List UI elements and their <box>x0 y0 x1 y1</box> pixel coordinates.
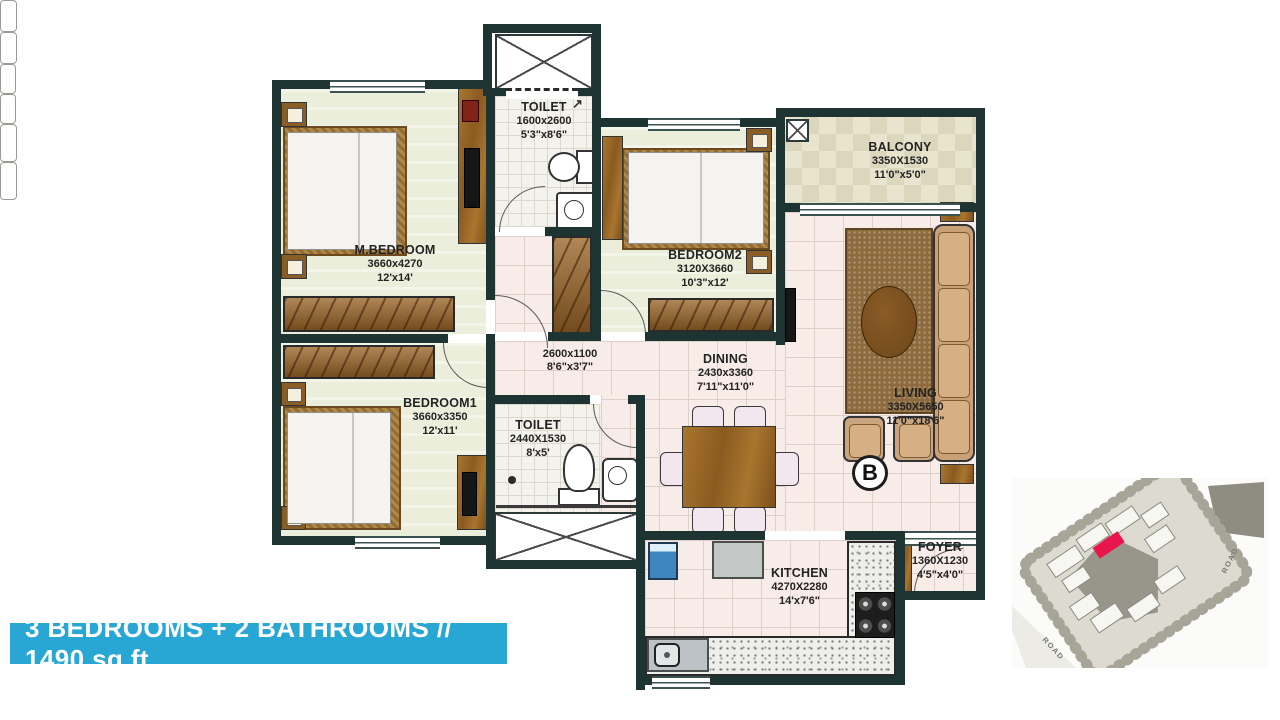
wall <box>645 332 785 341</box>
duvet-line <box>700 153 702 243</box>
wall <box>776 108 785 345</box>
room-label-bedroom1: BEDROOM1 3660x3350 12'x11' <box>380 396 500 438</box>
toilet-accessory <box>508 476 516 484</box>
wall <box>785 203 801 212</box>
room-dim-metric: 1600x2600 <box>498 115 590 128</box>
room-label-dining: DINING 2430x3360 7'11"x11'0" <box>668 352 783 394</box>
wall <box>486 560 645 569</box>
nightstand <box>281 382 306 406</box>
wall <box>776 108 985 117</box>
dining-chair <box>772 452 799 486</box>
tv-icon <box>785 288 796 342</box>
side-table <box>940 464 974 484</box>
wall <box>592 96 601 332</box>
room-label-passage: 2600x1100 8'6"x3'7" <box>518 348 622 375</box>
pillow <box>0 124 17 162</box>
nightstand <box>281 102 307 127</box>
wall <box>636 395 645 690</box>
dresser <box>602 136 623 240</box>
shaft-access-opening <box>506 88 578 99</box>
sofa-cushion <box>938 232 970 286</box>
nightstand <box>281 254 307 279</box>
wall <box>645 531 765 540</box>
window <box>652 676 710 689</box>
wall <box>486 96 495 300</box>
sofa-cushion <box>938 288 970 342</box>
pillow <box>0 0 17 32</box>
dining-table <box>682 426 776 508</box>
room-label-bedroom2: BEDROOM2 3120X3660 10'3"x12' <box>640 248 770 290</box>
wall <box>545 227 601 236</box>
duvet-line <box>358 133 360 249</box>
room-label-toilet2: TOILET 2440X1530 8'x5' <box>492 418 584 460</box>
pillow <box>0 32 17 64</box>
tv-icon <box>462 472 477 516</box>
wall <box>495 395 590 404</box>
unit-b-marker: B <box>852 455 888 491</box>
wall <box>896 591 985 600</box>
mattress <box>287 132 397 250</box>
room-label-mbedroom: M.BEDROOM 3660x4270 12'x14' <box>330 243 460 285</box>
sink-drain <box>664 652 670 658</box>
nightstand <box>746 128 772 152</box>
room-dim-imperial: 5'3"x8'6" <box>498 129 590 142</box>
linen-wardrobe <box>552 236 592 334</box>
window <box>648 118 740 131</box>
wardrobe <box>283 296 455 332</box>
window <box>355 536 440 549</box>
wall <box>272 334 448 343</box>
room-label-kitchen: KITCHEN 4270X2280 14'x7'6" <box>742 566 857 608</box>
armchair-cushion <box>849 424 881 458</box>
decor-item <box>462 100 479 122</box>
mattress <box>628 152 764 244</box>
summary-banner: 3 BEDROOMS + 2 BATHROOMS // 1490 sq.ft <box>10 623 507 664</box>
stove-icon <box>855 592 895 638</box>
wall <box>592 24 601 96</box>
mattress <box>287 412 391 524</box>
wardrobe <box>648 298 774 332</box>
balcony-duct <box>786 119 809 142</box>
wall <box>960 203 976 212</box>
wc-icon <box>548 152 580 182</box>
wall <box>483 24 601 33</box>
tv-icon <box>464 148 480 208</box>
wall <box>548 332 601 341</box>
coffee-table <box>861 286 917 358</box>
duct-shaft-top <box>495 34 593 90</box>
duct-shaft-bottom <box>494 512 638 562</box>
wall <box>272 80 281 545</box>
window <box>330 80 425 93</box>
room-label-living: LIVING 3350X5650 11'0"x18'6" <box>858 386 973 428</box>
dining-chair <box>734 506 766 534</box>
pillow <box>0 94 16 124</box>
armchair-cushion <box>899 424 931 458</box>
room-label-balcony: BALCONY 3350X1530 11'0"x5'0" <box>835 140 965 182</box>
vanity-counter-edge <box>496 505 636 508</box>
floorplan-page: TOILET 1600x2600 5'3"x8'6" ↗ M.BEDROOM 3… <box>0 0 1280 720</box>
refrigerator <box>648 542 678 580</box>
wardrobe <box>283 345 435 379</box>
washbasin-bowl <box>608 466 627 485</box>
site-map: ROAD ROAD <box>1012 478 1268 668</box>
pillow <box>0 162 17 200</box>
unit-b-label: B <box>862 460 878 486</box>
summary-banner-text: 3 BEDROOMS + 2 BATHROOMS // 1490 sq.ft <box>25 613 507 675</box>
room-label-foyer: FOYER 1360X1230 4'5"x4'0" <box>900 540 980 582</box>
exhaust-arrow-icon: ↗ <box>572 96 583 112</box>
balcony-sill-window <box>800 203 960 216</box>
washbasin-bowl <box>564 200 584 220</box>
dining-chair <box>692 506 724 534</box>
wall <box>976 108 985 600</box>
duvet-line <box>352 413 354 523</box>
pillow <box>0 64 16 94</box>
